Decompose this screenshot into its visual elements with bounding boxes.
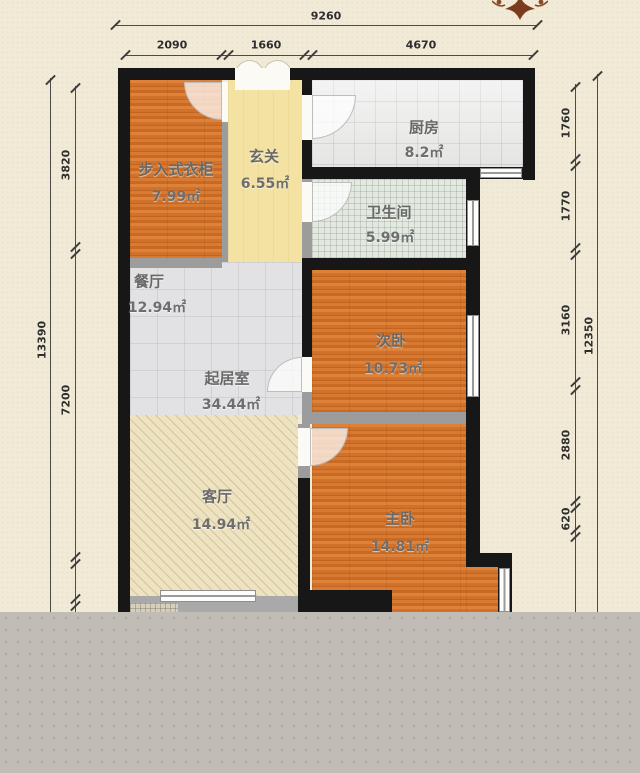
room-label-parlor: 客厅 bbox=[202, 490, 232, 505]
wall-bedroom-partition bbox=[312, 412, 466, 424]
wall-bottom bbox=[302, 590, 392, 612]
room-area-closet: 7.99㎡ bbox=[152, 190, 201, 204]
room-label-hallway: 玄关 bbox=[249, 150, 279, 165]
dim-line-top-segments bbox=[125, 55, 533, 56]
dim-label-right-seg4: 620 bbox=[560, 508, 573, 531]
entry-threshold bbox=[235, 80, 290, 90]
door-gap-kitchen bbox=[302, 95, 312, 140]
room-area-hallway: 6.55㎡ bbox=[241, 177, 290, 191]
window-kitchen-south bbox=[480, 168, 522, 178]
floor-plan: 步入式衣柜 7.99㎡ 玄关 6.55㎡ 厨房 8.2㎡ 卫生间 5.99㎡ 餐… bbox=[0, 0, 640, 773]
wall-bathroom-south bbox=[302, 258, 466, 270]
dim-label-right-seg0: 1760 bbox=[560, 108, 573, 139]
wall-master-step bbox=[466, 553, 512, 567]
room-label-living: 起居室 bbox=[204, 372, 249, 387]
room-label-kitchen: 厨房 bbox=[409, 121, 439, 136]
room-area-kitchen: 8.2㎡ bbox=[405, 146, 444, 160]
dim-label-top-seg1: 1660 bbox=[251, 39, 282, 52]
wall-bedroom2-west-low bbox=[302, 392, 312, 424]
dim-label-right-total: 12350 bbox=[583, 317, 596, 355]
room-floor-hallway bbox=[228, 80, 302, 266]
room-label-bathroom: 卫生间 bbox=[366, 206, 411, 221]
door-gap-master bbox=[298, 428, 310, 466]
dim-label-top-seg2: 4670 bbox=[406, 39, 437, 52]
dim-label-top-total: 9260 bbox=[311, 10, 342, 23]
entry-door-gap bbox=[235, 68, 290, 80]
room-label-dining: 餐厅 bbox=[134, 275, 164, 290]
wall-bath-west-b bbox=[302, 222, 312, 258]
dim-line-left-total bbox=[50, 78, 51, 612]
damask-ornament-icon bbox=[492, 0, 548, 20]
dim-line-left-segments bbox=[75, 86, 76, 612]
room-floor-master-bay bbox=[466, 567, 498, 612]
room-area-dining: 12.94㎡ bbox=[128, 301, 186, 315]
dim-label-top-seg0: 2090 bbox=[157, 39, 188, 52]
wall-top-left bbox=[118, 68, 235, 80]
room-area-bathroom: 5.99㎡ bbox=[366, 231, 415, 245]
balcony-mosaic-floor bbox=[130, 603, 178, 612]
wall-top-right bbox=[290, 68, 535, 80]
dim-label-left-seg1: 7200 bbox=[60, 385, 73, 416]
window-parlor-south bbox=[160, 590, 256, 602]
room-area-master: 14.81㎡ bbox=[371, 540, 429, 554]
wall-hall-east-a bbox=[302, 80, 312, 95]
room-label-bedroom2: 次卧 bbox=[376, 334, 406, 349]
window-bathroom-east bbox=[467, 200, 479, 246]
wall-hall-east-b bbox=[302, 140, 312, 179]
room-floor-parlor bbox=[130, 415, 298, 598]
cropped-area-overlay bbox=[0, 612, 640, 773]
dim-label-right-seg2: 3160 bbox=[560, 305, 573, 336]
room-label-closet: 步入式衣柜 bbox=[138, 163, 213, 178]
door-gap-bathroom bbox=[302, 182, 312, 222]
dim-label-left-total: 13390 bbox=[36, 321, 49, 359]
room-area-bedroom2: 10.73㎡ bbox=[364, 362, 422, 376]
room-label-master: 主卧 bbox=[385, 512, 415, 527]
door-gap-bedroom2 bbox=[302, 357, 312, 392]
window-master-se bbox=[499, 568, 510, 612]
wall-parlor-east-b bbox=[298, 466, 310, 478]
room-area-parlor: 14.94㎡ bbox=[192, 518, 250, 532]
dim-line-right-total bbox=[597, 74, 598, 612]
dim-line-top-total bbox=[115, 25, 537, 26]
wall-closet-east bbox=[222, 122, 228, 262]
window-bedroom2-east bbox=[467, 315, 479, 397]
wall-left bbox=[118, 68, 130, 612]
door-gap-closet bbox=[222, 82, 228, 122]
wall-closet-south bbox=[130, 258, 222, 268]
dim-label-right-seg1: 1770 bbox=[560, 191, 573, 222]
room-area-living: 34.44㎡ bbox=[202, 398, 260, 412]
wall-bedroom2-west bbox=[302, 262, 312, 357]
dim-label-left-seg0: 3820 bbox=[60, 150, 73, 181]
wall-kitchen-east bbox=[523, 68, 535, 180]
dim-label-right-seg3: 2880 bbox=[560, 430, 573, 461]
